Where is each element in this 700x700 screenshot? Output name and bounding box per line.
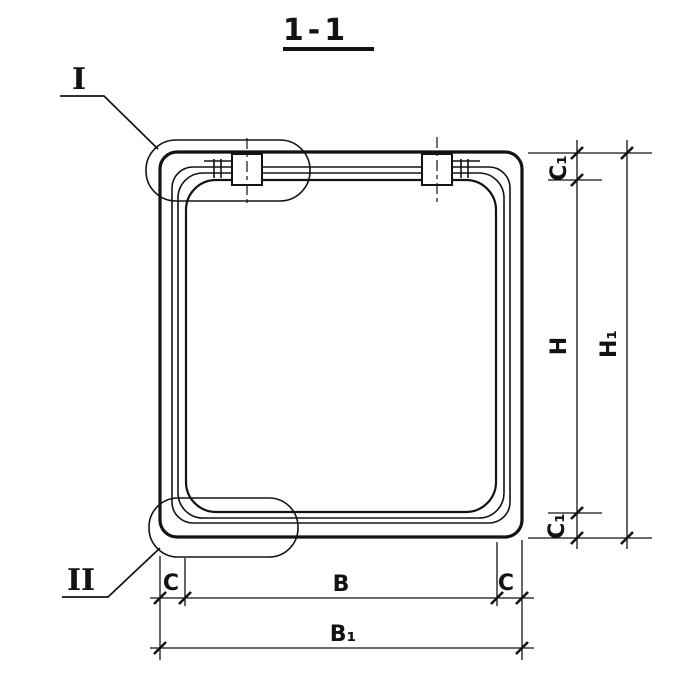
inner-contour-2: [178, 173, 504, 518]
vertical-dimensions: C₁ H C₁ H₁: [528, 140, 652, 549]
dim-label-h: H: [547, 337, 572, 355]
dim-label-c-right: C: [498, 571, 514, 596]
inner-face-contour: [186, 180, 496, 512]
drawing-sheet: 1-1 I II C₁ H C₁ H₁: [0, 0, 700, 700]
detail-bubble-top-left: [146, 140, 310, 201]
detail-callout-2: II: [62, 548, 160, 598]
top-joint-right: [422, 137, 480, 203]
callout-1-leader-line: [60, 96, 158, 149]
drawing-title-group: 1-1: [283, 13, 374, 49]
section-title: 1-1: [283, 13, 349, 48]
detail-callout-1: I: [60, 62, 158, 149]
inner-contour-1: [172, 167, 510, 523]
callout-2-label: II: [67, 563, 95, 598]
section-drawing-canvas: 1-1 I II C₁ H C₁ H₁: [0, 0, 700, 700]
dim-label-b: B: [333, 572, 350, 597]
callout-1-label: I: [72, 62, 86, 97]
dim-label-h1: H₁: [597, 330, 622, 358]
detail-bubble-bottom-left: [149, 498, 298, 557]
horizontal-dimensions: C B C B₁: [150, 540, 534, 660]
joint-groove-lines-right: [452, 159, 480, 178]
dim-label-c-left: C: [163, 571, 179, 596]
dim-label-b1: B₁: [330, 622, 356, 647]
detail-bubbles: [146, 140, 310, 557]
dim-label-c1-bottom: C₁: [545, 513, 570, 539]
dim-label-c1-top: C₁: [547, 155, 572, 181]
box-section: [160, 152, 522, 537]
outer-contour: [160, 152, 522, 537]
joint-groove-lines-left: [204, 159, 232, 178]
top-joint-left: [204, 138, 262, 203]
